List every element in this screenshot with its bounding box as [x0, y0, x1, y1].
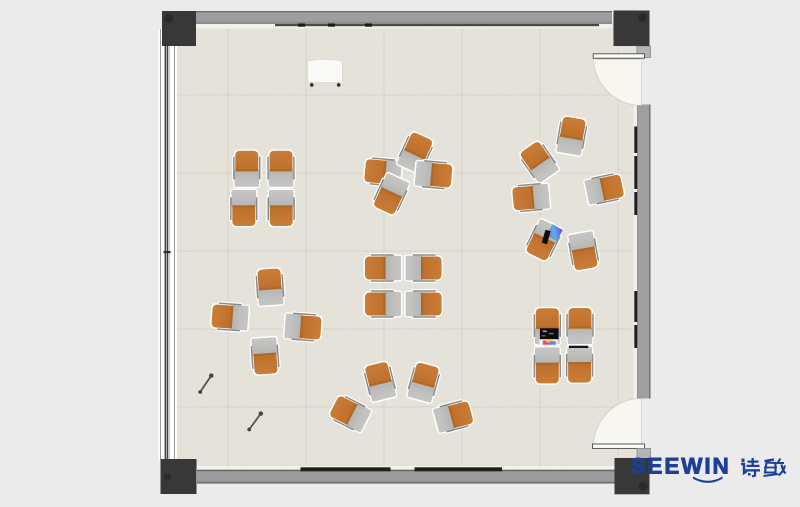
svg-text:SEEWIN: SEEWIN [631, 454, 731, 479]
